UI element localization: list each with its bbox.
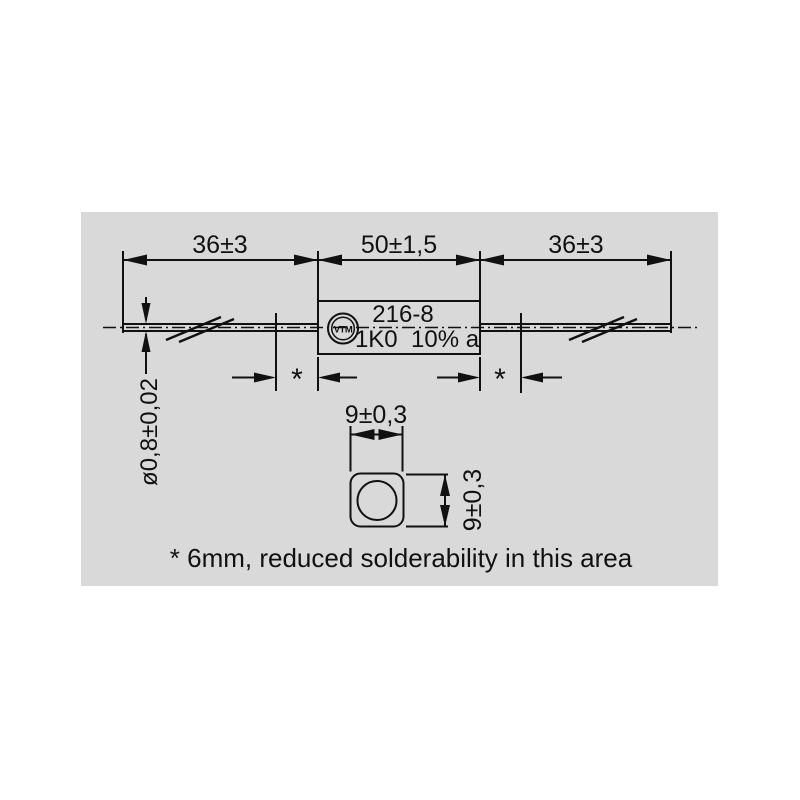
manufacturer-logo-text: VTM [334, 325, 353, 336]
resistor-value-label: 1K0 10% a [355, 326, 480, 353]
dim-label-left-lead: 36±3 [192, 231, 247, 259]
page-background: 36±3 50±1,5 36±3 VTM 216-8 1K0 10% a [0, 0, 800, 800]
asterisk-marker: * [494, 363, 506, 396]
dim-label-right-lead: 36±3 [548, 231, 603, 259]
dim-label-wire-diameter: ø0,8±0,02 [136, 378, 163, 486]
drawing-panel [81, 212, 718, 586]
resistor-type-label: 216-8 [372, 301, 433, 328]
dim-label-section-width: 9±0,3 [345, 401, 407, 429]
dim-label-section-height: 9±0,3 [459, 469, 487, 531]
resistor-dimension-drawing: 36±3 50±1,5 36±3 VTM 216-8 1K0 10% a [0, 0, 800, 800]
asterisk-marker: * [291, 363, 303, 396]
dim-label-body-length: 50±1,5 [361, 231, 437, 259]
footnote: * 6mm, reduced solderability in this are… [170, 543, 633, 573]
